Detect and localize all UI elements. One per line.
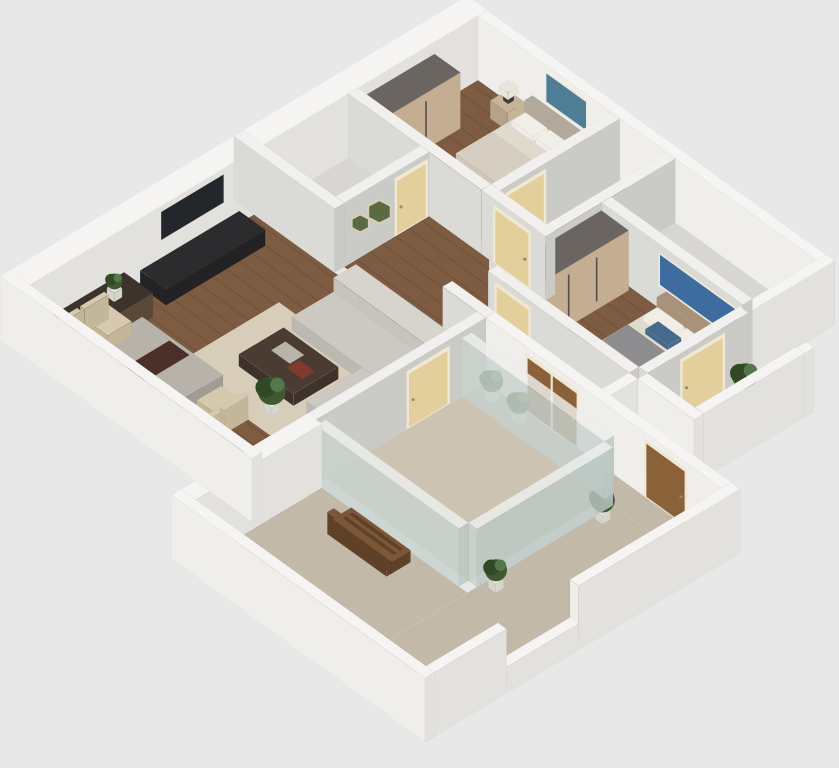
hexagon-wall-decor: [352, 214, 369, 232]
hexagon-wall-decor: [368, 200, 391, 223]
floor-plan-stage: [0, 0, 839, 768]
wardrobe-handle: [568, 274, 570, 319]
floor-plan-3d-render: [0, 0, 839, 768]
wardrobe-handle: [596, 257, 598, 302]
